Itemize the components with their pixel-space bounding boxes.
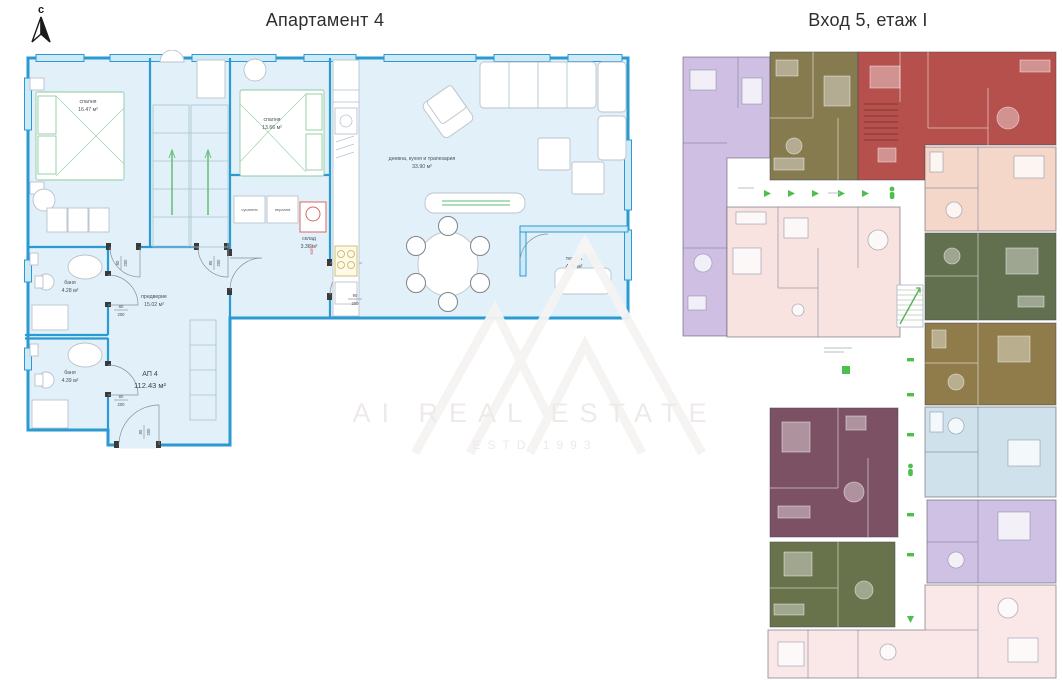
kitchen-counter	[333, 60, 359, 316]
north-compass: с	[26, 2, 56, 46]
room-area-bedroom1: 16.47 м²	[78, 107, 98, 113]
room-area-terrace: 4.38 м²	[566, 264, 583, 270]
room-label-bedroom2: спалня	[264, 117, 281, 123]
right-plan-title: Вход 5, етаж I	[726, 10, 1010, 31]
door-dim: 80	[119, 394, 124, 399]
room-label-bedroom1: спалня	[80, 99, 97, 105]
north-arrow-icon	[32, 17, 50, 42]
door-dim: 80	[115, 260, 120, 265]
door-dim: 200	[118, 402, 126, 407]
boiler-label: котел	[309, 243, 314, 254]
floor-overview-plan	[678, 48, 1058, 680]
washer-label: пералня	[275, 207, 291, 212]
door-dim: 200	[146, 428, 151, 436]
dryer-label: сушилня	[241, 207, 257, 212]
apartment-id-label: АП 4	[142, 371, 158, 378]
door-dim: 200	[123, 259, 128, 267]
room-label-living: дневна, кухня и трапезария	[389, 156, 456, 162]
apartment-area-label: 112.43 м²	[134, 381, 167, 390]
apartment-floor-plan: спалня 16.47 м² спалня 13.66 м² дневна, …	[22, 50, 637, 455]
room-label-storage: склад	[302, 236, 316, 242]
door-dim: 90	[353, 293, 358, 298]
left-plan-title: Апартамент 4	[160, 10, 490, 31]
room-area-bedroom2: 13.66 м²	[262, 125, 282, 131]
terrace-bench	[555, 268, 611, 294]
room-area-bath1: 4.28 м²	[62, 288, 79, 294]
stairwell	[897, 285, 923, 327]
door-dim: 200	[352, 301, 360, 306]
room-label-hall: предверие	[141, 294, 167, 300]
room-area-hall: 15.02 м²	[144, 302, 164, 308]
room-label-bath1: баня	[64, 280, 76, 286]
door-dim: 80	[208, 260, 213, 265]
door-dim: 200	[216, 259, 221, 267]
room-label-bath2: баня	[64, 370, 76, 376]
door-dim: 80	[138, 429, 143, 434]
door-dim: 80	[119, 304, 124, 309]
room-area-living: 33.90 м²	[412, 164, 432, 170]
entrance-opening	[119, 443, 156, 449]
room-area-bath2: 4.39 м²	[62, 378, 79, 384]
room-label-terrace: тераса	[566, 256, 583, 262]
door-dim: 200	[118, 312, 126, 317]
compass-label: с	[38, 4, 44, 16]
real-estate-floor-plan-page: Апартамент 4 Вход 5, етаж I с	[0, 0, 1062, 680]
